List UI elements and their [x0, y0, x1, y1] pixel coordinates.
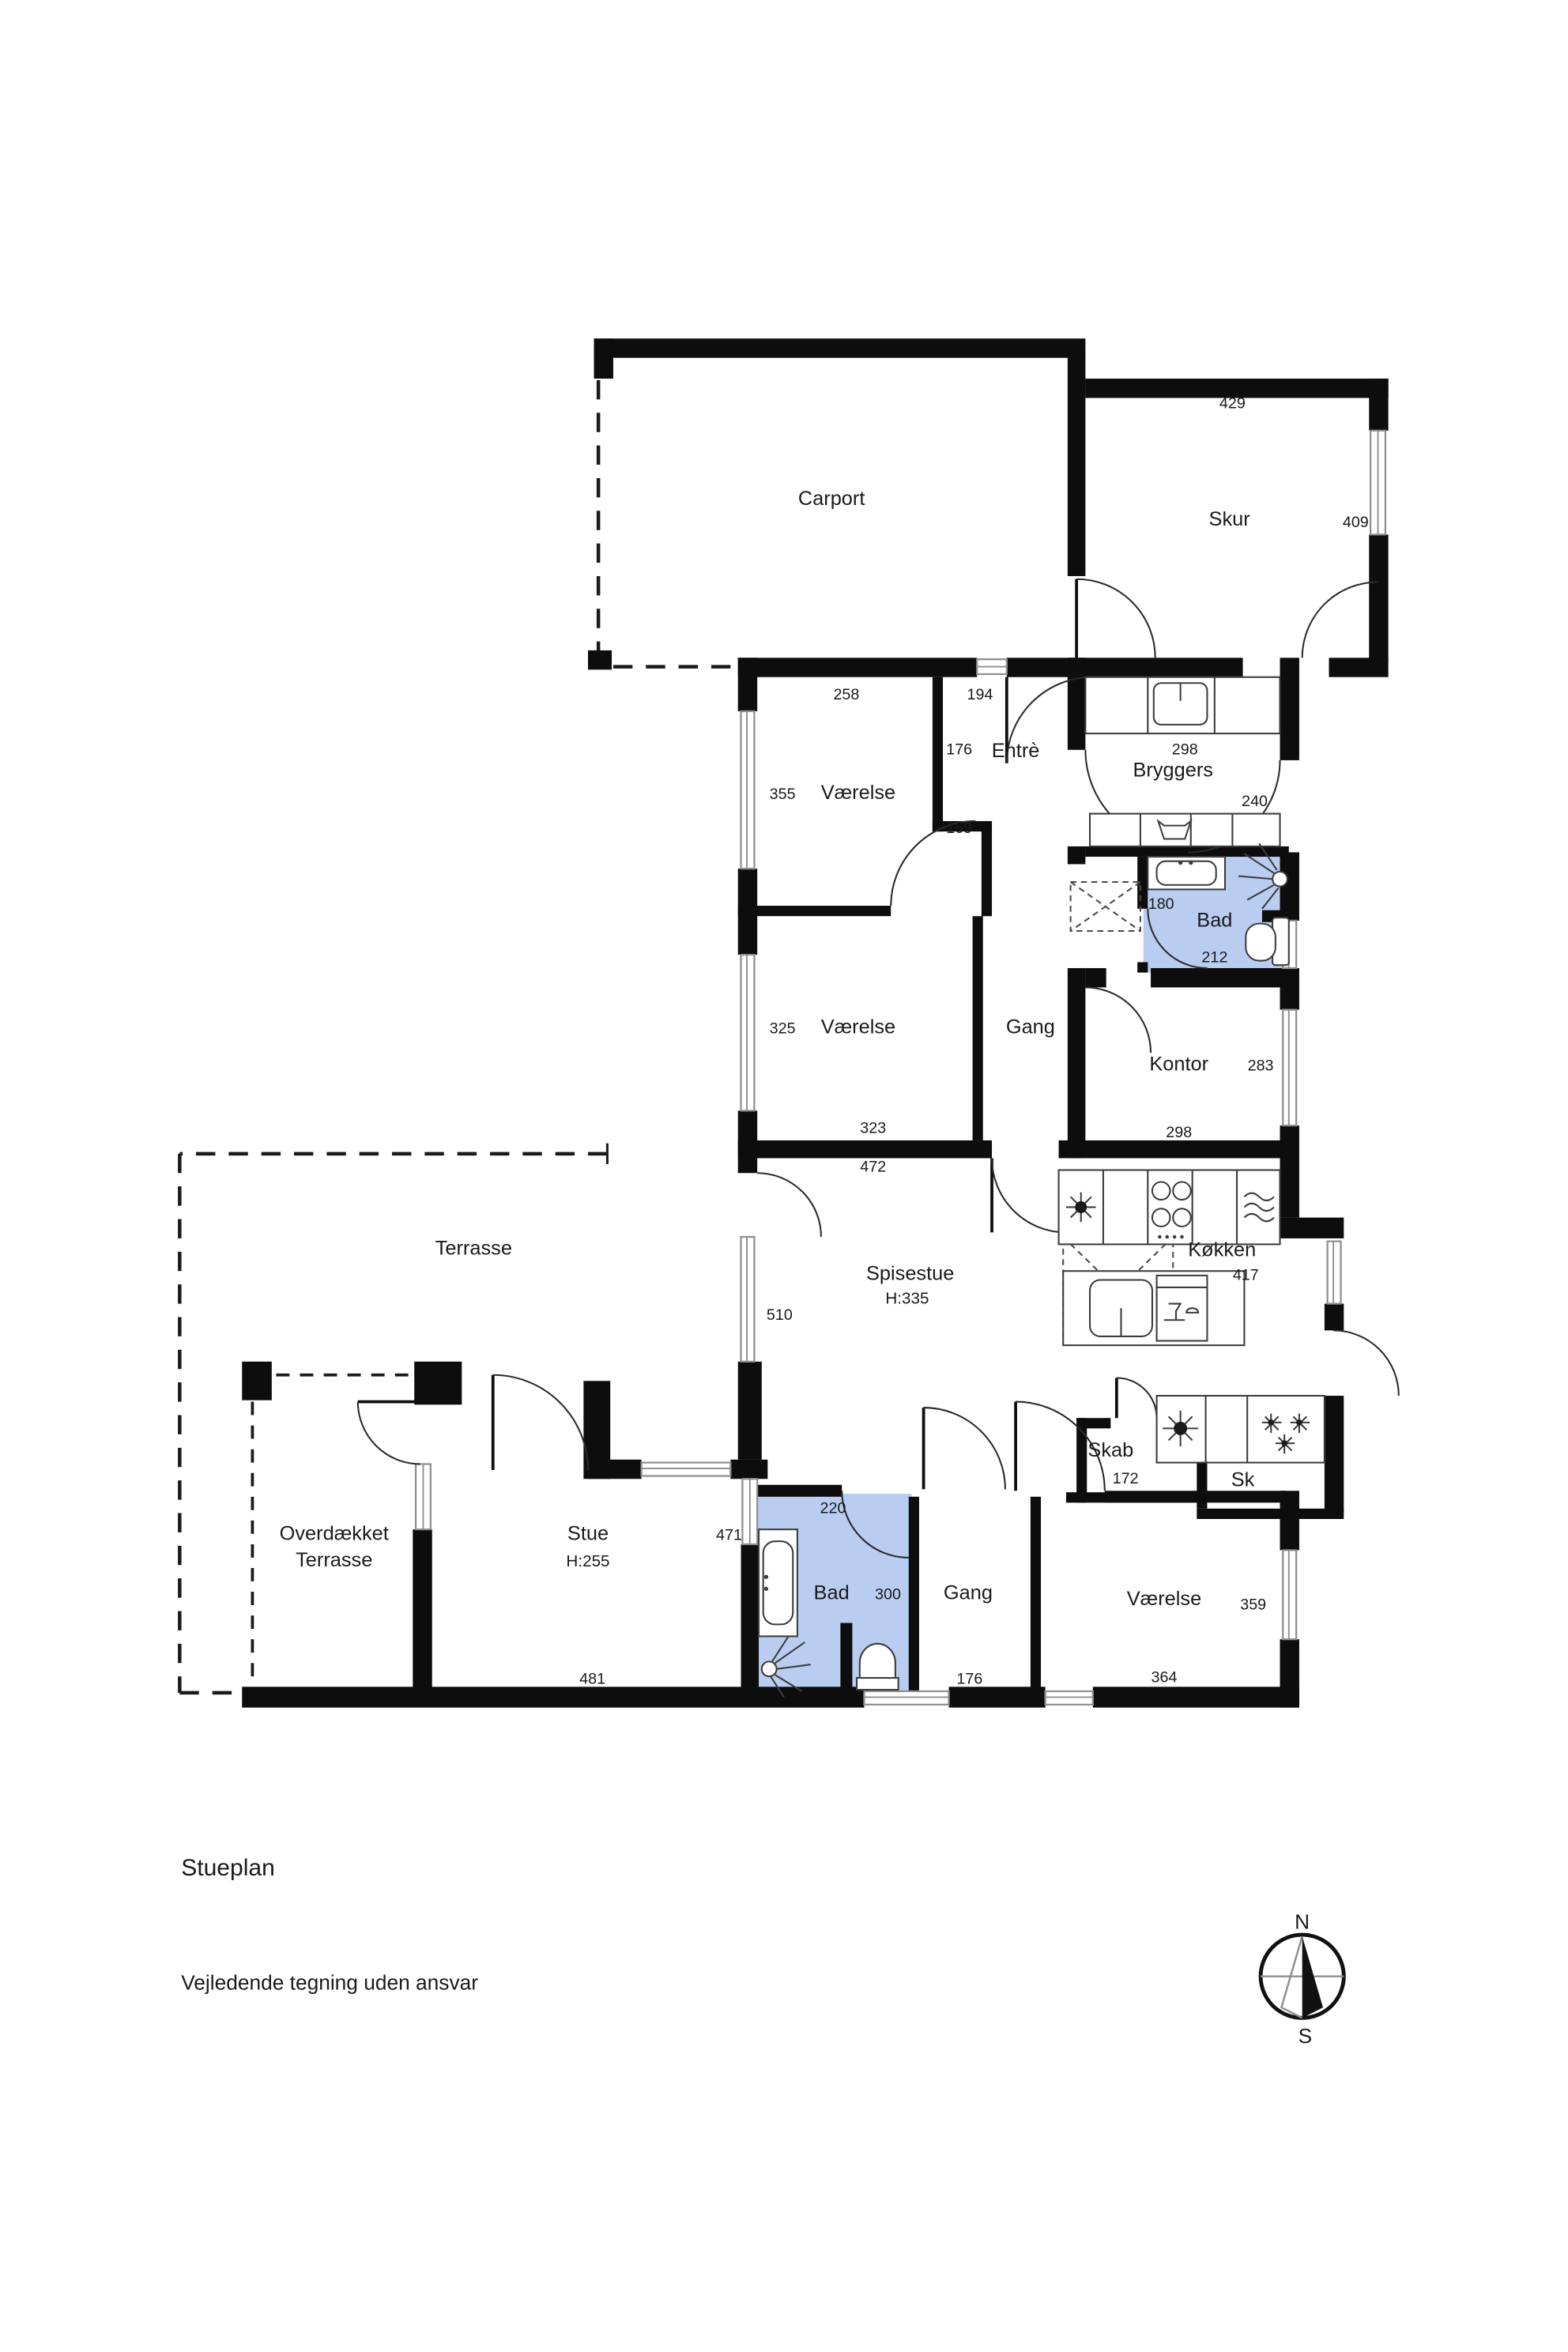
dim-vaerelse-n-top: 258 — [833, 686, 859, 703]
dim-kokken-side: 417 — [1233, 1267, 1259, 1284]
skab-door — [1117, 1378, 1157, 1419]
dim-bryggers-side: 240 — [1242, 793, 1268, 810]
dim-vaerelse-s-side: 359 — [1240, 1596, 1266, 1614]
dim-gang2-bottom: 176 — [956, 1671, 982, 1688]
bad-lower-sink-icon — [763, 1541, 793, 1624]
footer: Stueplan Vejledende tegning uden ansvar — [181, 1855, 478, 1995]
entre-window — [977, 659, 1007, 674]
compass-north-label: N — [1295, 1910, 1310, 1934]
skur-window — [1370, 431, 1385, 535]
room-label-vaerelse-syd: Værelse — [1127, 1588, 1201, 1610]
skur-door-right — [1302, 582, 1378, 658]
dim-bad2-top: 220 — [820, 1499, 846, 1517]
dim-skur-top: 429 — [1219, 395, 1246, 413]
room-labels: Carport Skur Værelse Entrè Bryggers Bad … — [280, 488, 1257, 1610]
dim-spisestue-side: 510 — [767, 1306, 793, 1324]
floorplan-page: Carport Skur Værelse Entrè Bryggers Bad … — [0, 0, 1568, 2352]
vaerelse-syd-window — [1283, 1550, 1296, 1639]
room-label-overdaekket-1: Overdækket — [280, 1522, 389, 1544]
room-label-bad-2: Bad — [814, 1581, 850, 1604]
spisestue-window — [741, 1237, 755, 1362]
room-label-skur: Skur — [1209, 508, 1251, 530]
bryggers-counter-bottom — [1090, 814, 1280, 846]
dim-kontor-bottom: 298 — [1166, 1124, 1192, 1141]
dim-bad1-bottom: 212 — [1201, 948, 1227, 966]
dim-notch: 169 — [946, 820, 972, 837]
overdaekket-window — [416, 1464, 431, 1529]
skylight-icon-bad — [1071, 882, 1140, 931]
room-sub-stue: H:255 — [566, 1552, 609, 1570]
bad-upper-toilet-icon — [1246, 918, 1288, 965]
dishwasher-icon — [1157, 1276, 1208, 1341]
room-label-spisestue: Spisestue — [866, 1263, 954, 1285]
page-title: Stueplan — [181, 1855, 275, 1881]
dim-kontor-side: 283 — [1248, 1057, 1274, 1075]
kokken-window — [1328, 1242, 1341, 1304]
room-sub-spisestue: H:335 — [885, 1290, 929, 1308]
floorplan-drawing: Carport Skur Værelse Entrè Bryggers Bad … — [0, 0, 1568, 2352]
room-label-gang-1: Gang — [1006, 1016, 1055, 1038]
stue-top-window — [642, 1463, 731, 1476]
dim-stue-side: 471 — [716, 1526, 742, 1543]
disclaimer-text: Vejledende tegning uden ansvar — [181, 1971, 478, 1995]
bad-lower-window — [864, 1691, 948, 1705]
room-label-vaerelse-nord: Værelse — [821, 782, 895, 804]
room-label-bad-1: Bad — [1197, 909, 1232, 931]
overdaekket-door — [358, 1402, 420, 1464]
bryggers-sink-icon — [1154, 683, 1208, 725]
kontor-window — [1283, 1010, 1296, 1126]
gang2-door-west — [924, 1408, 1005, 1489]
vaerelse-vest-window — [741, 955, 755, 1110]
room-label-carport: Carport — [798, 488, 865, 510]
vaerelse-nord-window — [741, 711, 755, 869]
room-label-overdaekket-2: Terrasse — [296, 1549, 372, 1571]
room-label-terrasse: Terrasse — [435, 1238, 512, 1260]
dim-entre-side: 176 — [946, 741, 972, 758]
gang-lower-window — [1046, 1691, 1093, 1705]
dim-vaerelse-w-bottom: 323 — [860, 1120, 886, 1137]
dim-bad1-top: 180 — [1148, 895, 1174, 913]
room-label-gang-2: Gang — [944, 1581, 993, 1604]
room-label-skab: Skab — [1087, 1439, 1133, 1461]
kontor-door — [1085, 987, 1151, 1053]
dim-entre-top: 194 — [967, 686, 993, 703]
bad-lower-toilet-icon — [857, 1644, 899, 1690]
stue-bad-window — [742, 1479, 757, 1544]
dim-bad2-side: 300 — [875, 1585, 901, 1603]
room-label-stue: Stue — [567, 1522, 609, 1544]
room-label-entre: Entrè — [992, 740, 1040, 762]
dim-vaerelse-s-bottom: 364 — [1151, 1669, 1178, 1687]
room-label-kontor: Kontor — [1149, 1053, 1208, 1076]
bad-upper-sink-icon — [1157, 861, 1216, 885]
room-label-vaerelse-vest: Værelse — [821, 1016, 895, 1038]
dim-skab-bottom: 172 — [1113, 1470, 1139, 1487]
skur-door-left — [1076, 579, 1155, 658]
terrasse-spisestue-door — [757, 1173, 821, 1237]
dim-vaerelse-w-side: 325 — [770, 1020, 796, 1038]
room-label-bryggers: Bryggers — [1133, 759, 1212, 782]
kokken-east-door — [1333, 1330, 1399, 1396]
compass-south-label: S — [1298, 2024, 1313, 2048]
dim-span-472: 472 — [860, 1158, 886, 1175]
dim-stue-bottom: 481 — [579, 1671, 605, 1688]
stue-terrasse-door — [493, 1375, 588, 1470]
room-label-sk: Sk — [1231, 1469, 1255, 1491]
dim-skur-side: 409 — [1343, 514, 1369, 531]
dim-vaerelse-n-side: 355 — [770, 786, 796, 803]
dim-bryggers-top: 298 — [1172, 741, 1198, 758]
dashed-outlines — [179, 380, 737, 1693]
compass-icon: N S — [1261, 1910, 1344, 2049]
gang1-spisestue-door — [992, 1158, 1066, 1232]
room-label-kokken: Køkken — [1188, 1238, 1256, 1261]
